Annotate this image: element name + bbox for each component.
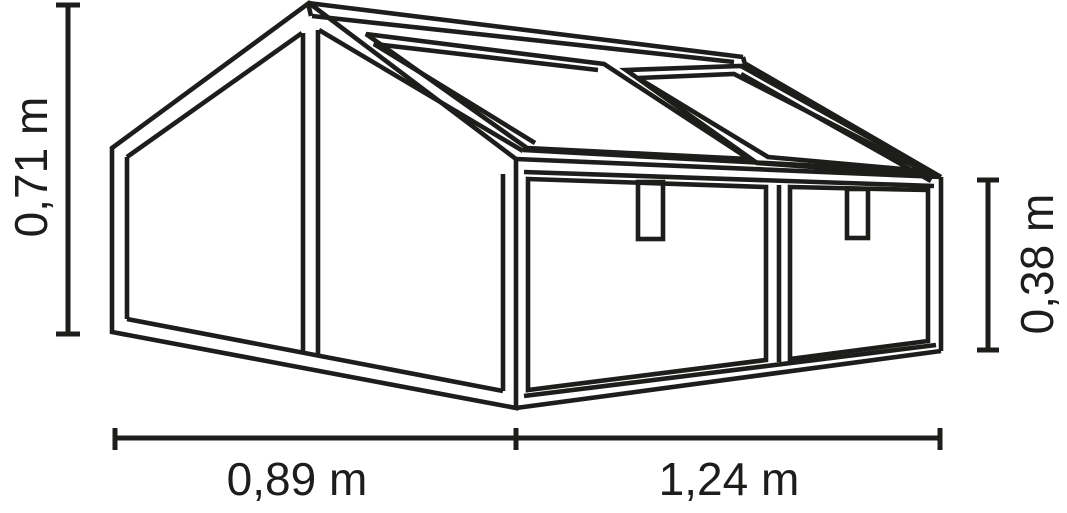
front-panel-right bbox=[790, 187, 928, 359]
greenhouse-drawing bbox=[112, 3, 941, 408]
latch-tab-left bbox=[638, 182, 663, 239]
diagram-canvas: 0,71 m 0,38 m 0,89 m 1,24 m bbox=[0, 0, 1067, 513]
dimension-label-front-height: 0,38 m bbox=[1011, 194, 1063, 335]
dimension-total-height: 0,71 m bbox=[5, 5, 80, 334]
gable-outer-frame bbox=[112, 3, 516, 408]
ridge-peak-cap bbox=[308, 3, 311, 16]
greenhouse-dimension-diagram: 0,71 m 0,38 m 0,89 m 1,24 m bbox=[0, 0, 1067, 513]
gable-inner-bottom-rail bbox=[127, 319, 503, 391]
dimension-label-depth: 0,89 m bbox=[227, 453, 368, 505]
dimension-label-total-height: 0,71 m bbox=[5, 97, 57, 238]
dimension-label-width: 1,24 m bbox=[659, 453, 800, 505]
left-gable-panel bbox=[112, 3, 523, 408]
dimension-front-height: 0,38 m bbox=[977, 180, 1063, 350]
front-bottom-rail-outer bbox=[516, 351, 941, 408]
latch-tab-right bbox=[847, 189, 868, 238]
dimension-bottom: 0,89 m 1,24 m bbox=[115, 428, 940, 505]
front-panel-left bbox=[528, 179, 766, 390]
gable-inner-left-slope bbox=[127, 33, 302, 157]
front-wall bbox=[516, 177, 941, 408]
front-bottom-rail-inner bbox=[524, 345, 936, 396]
